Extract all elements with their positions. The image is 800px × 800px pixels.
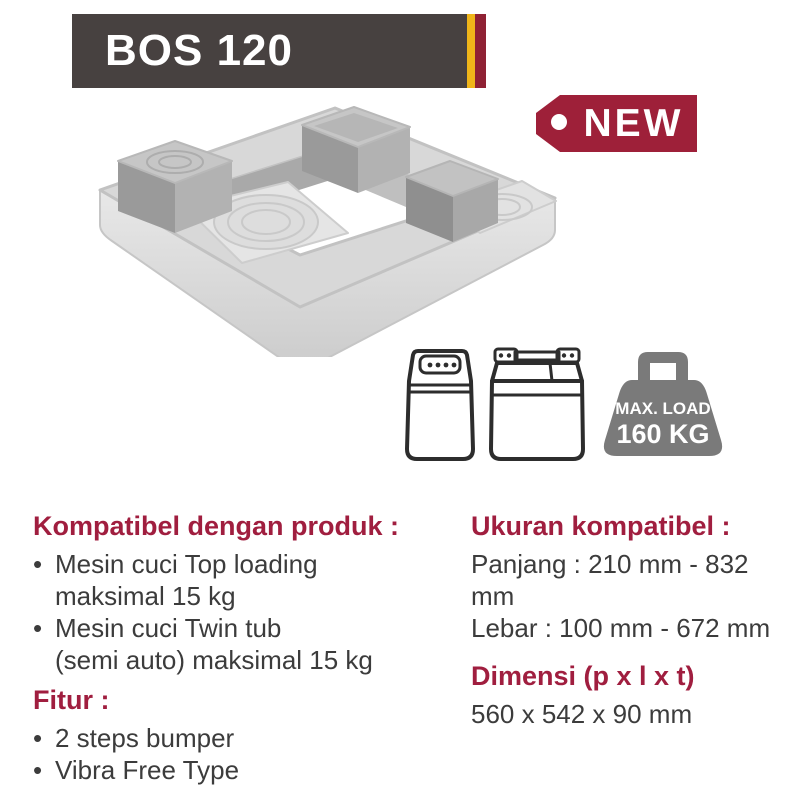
top-load-washer-icon (398, 343, 482, 467)
fitur-item-2: Vibra Free Type (33, 754, 463, 786)
banner-maroon-stripe (475, 14, 486, 88)
max-load-value: 160 KG (616, 419, 709, 449)
bullet-icon (33, 754, 55, 786)
compat-item-1: Mesin cuci Top loading maksimal 15 kg (33, 548, 463, 612)
fitur-item-1-text: 2 steps bumper (55, 722, 234, 754)
compat-heading: Kompatibel dengan produk : (33, 510, 463, 542)
new-tag-label: NEW (584, 102, 684, 146)
max-load-label: MAX. LOAD (615, 399, 710, 418)
dimensi-heading: Dimensi (p x l x t) (471, 660, 791, 692)
compat-item-1-line2: maksimal 15 kg (55, 580, 318, 612)
banner-yellow-stripe (467, 14, 475, 88)
compat-item-2-line2: (semi auto) maksimal 15 kg (55, 644, 373, 676)
model-banner: BOS 120 (72, 14, 467, 88)
compat-item-2-line1: Mesin cuci Twin tub (55, 612, 373, 644)
product-spec-sheet: BOS 120 NEW (0, 0, 800, 800)
new-tag-hole (551, 114, 567, 130)
right-info-column: Ukuran kompatibel : Panjang : 210 mm - 8… (471, 510, 791, 730)
washing-machine-base-render (70, 95, 570, 357)
ukuran-panjang: Panjang : 210 mm - 832 mm (471, 548, 791, 612)
compat-item-2: Mesin cuci Twin tub (semi auto) maksimal… (33, 612, 463, 676)
model-name: BOS 120 (105, 26, 293, 76)
twin-tub-washer-icon (486, 343, 588, 467)
fitur-heading: Fitur : (33, 684, 463, 716)
ukuran-heading: Ukuran kompatibel : (471, 510, 791, 542)
bullet-icon (33, 548, 55, 612)
left-info-column: Kompatibel dengan produk : Mesin cuci To… (33, 510, 463, 786)
bullet-icon (33, 722, 55, 754)
max-load-weight-icon: MAX. LOAD 160 KG (598, 350, 728, 472)
compat-item-1-line1: Mesin cuci Top loading (55, 548, 318, 580)
ukuran-lebar: Lebar : 100 mm - 672 mm (471, 612, 791, 644)
fitur-item-1: 2 steps bumper (33, 722, 463, 754)
bullet-icon (33, 612, 55, 676)
dimensi-value: 560 x 542 x 90 mm (471, 698, 791, 730)
fitur-item-2-text: Vibra Free Type (55, 754, 239, 786)
